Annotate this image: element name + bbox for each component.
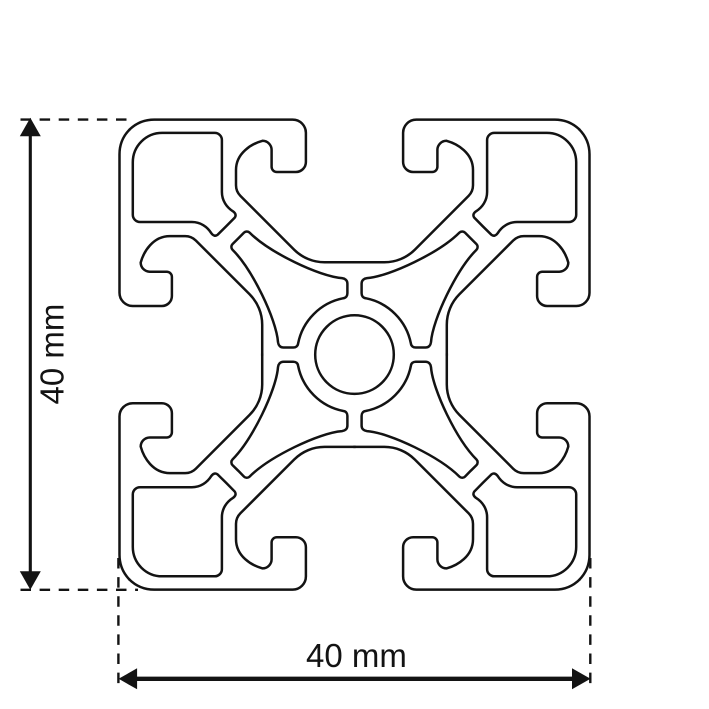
svg-text:40 mm: 40 mm [34,304,71,405]
svg-text:40 mm: 40 mm [306,637,407,674]
